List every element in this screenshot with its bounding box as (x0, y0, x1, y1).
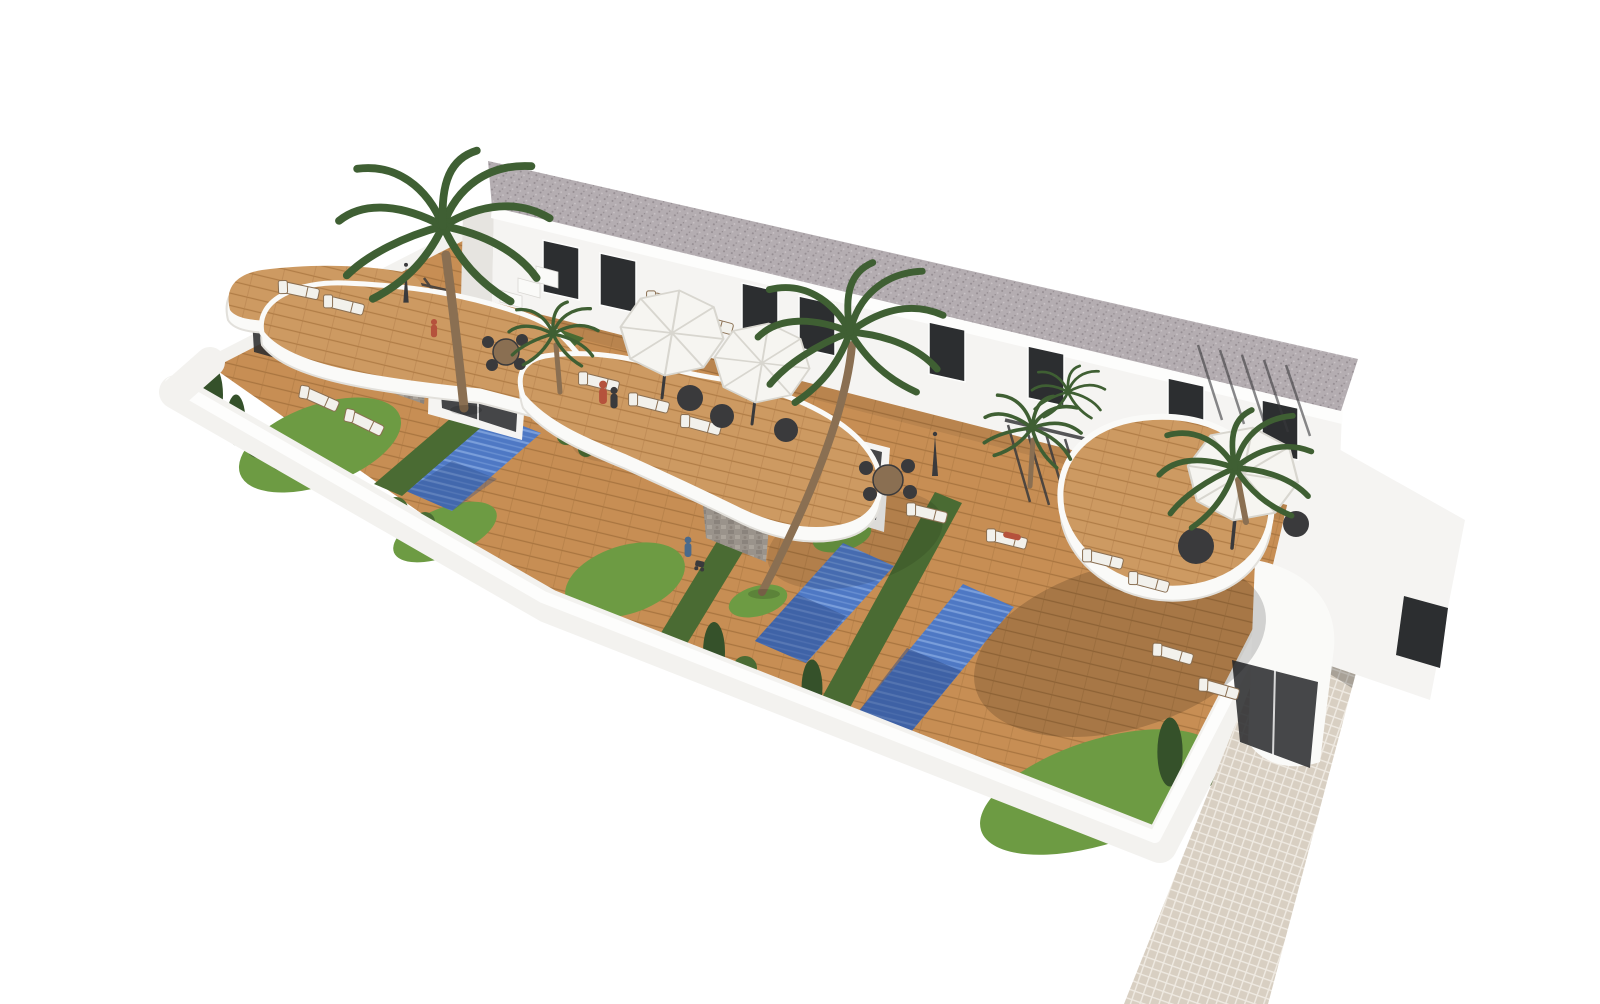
dining-table (873, 465, 903, 495)
trunk-shadow (450, 405, 482, 415)
person-standing (431, 319, 437, 337)
render-figure: Aerial 3D architectural rendering of a m… (0, 0, 1600, 1004)
person-walking (685, 537, 692, 557)
window (600, 253, 636, 313)
trunk-shadow (748, 589, 780, 599)
chair (482, 336, 494, 348)
chair (486, 359, 498, 371)
daybed (1178, 528, 1214, 564)
right-wing-window (1396, 596, 1448, 668)
round-chair (677, 385, 703, 411)
window (929, 322, 965, 382)
round-chair (774, 418, 798, 442)
chair (903, 485, 917, 499)
person-standing (599, 381, 607, 404)
chair (901, 459, 915, 473)
person-standing (610, 387, 617, 408)
palm-trunk (1030, 440, 1033, 486)
round-chair (710, 404, 734, 428)
chair (863, 487, 877, 501)
chair (859, 461, 873, 475)
architectural-render (0, 0, 1600, 1004)
